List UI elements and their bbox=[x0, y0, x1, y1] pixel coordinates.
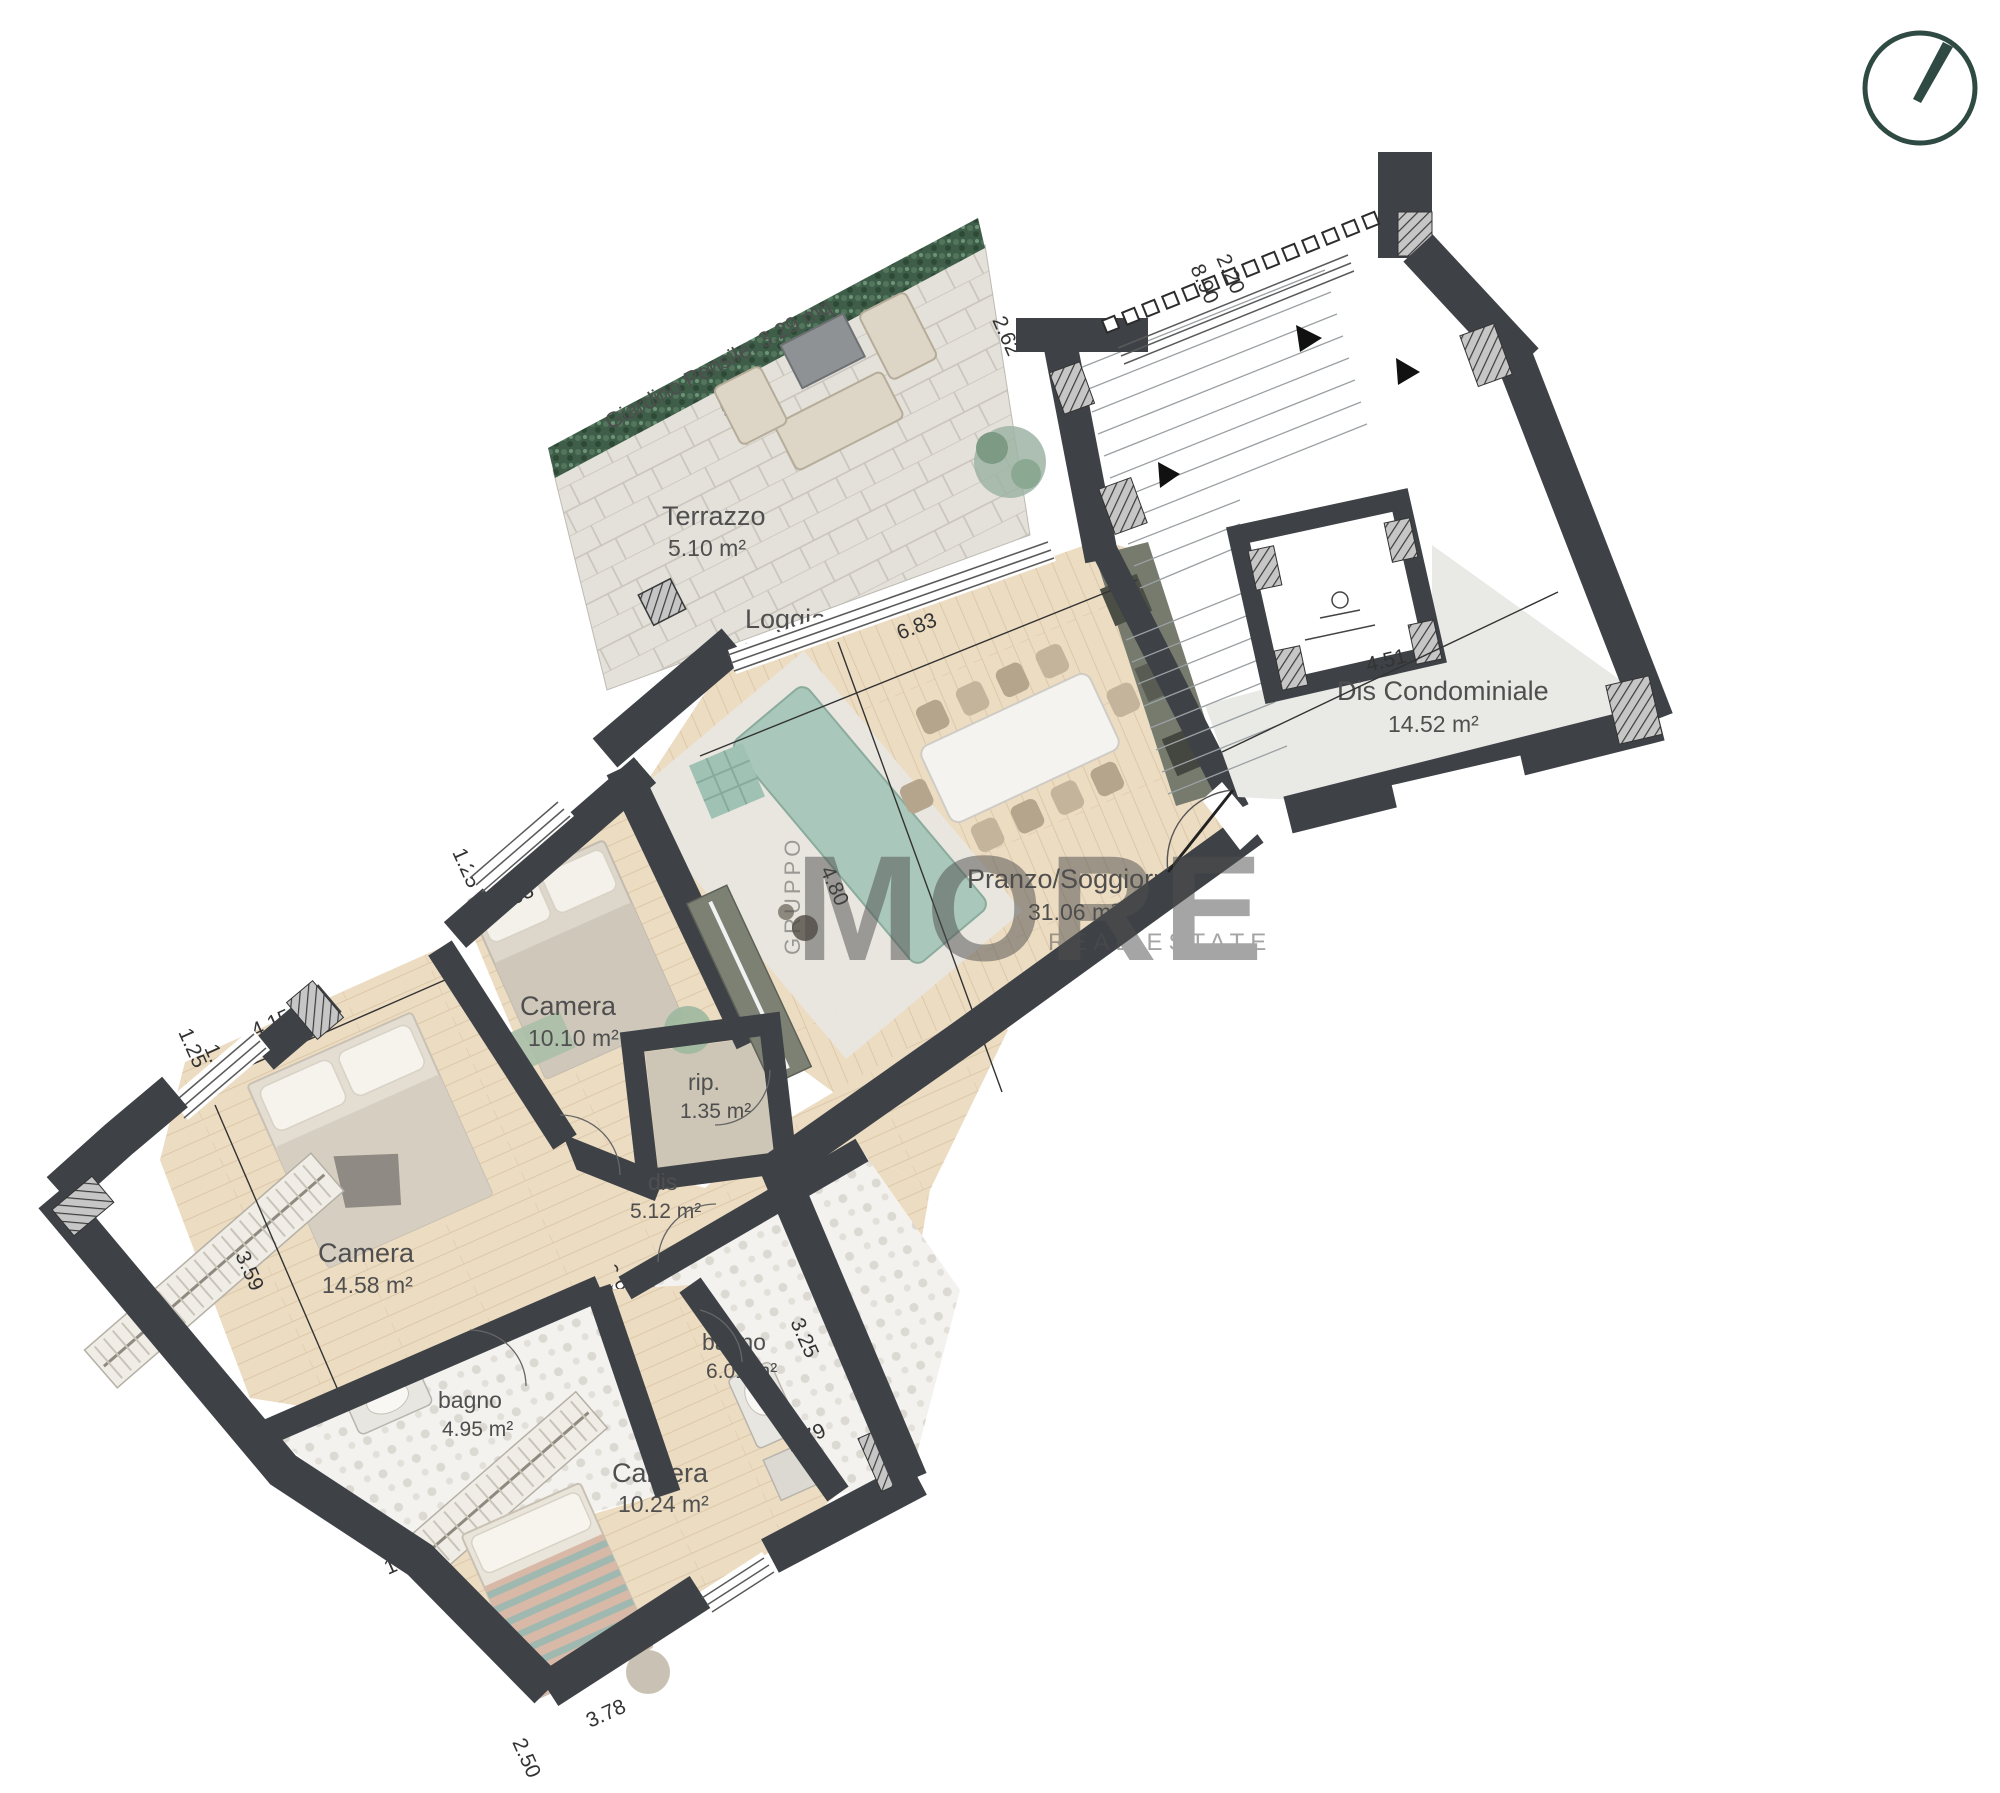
svg-text:REAL ESTATE: REAL ESTATE bbox=[1048, 929, 1272, 956]
svg-text:Dis Condominiale: Dis Condominiale bbox=[1337, 676, 1549, 706]
svg-text:rip.: rip. bbox=[688, 1069, 720, 1095]
svg-text:Terrazzo: Terrazzo bbox=[662, 501, 766, 531]
svg-text:10.10 m²: 10.10 m² bbox=[528, 1025, 619, 1051]
svg-text:5.12 m²: 5.12 m² bbox=[630, 1200, 701, 1223]
svg-text:4.95 m²: 4.95 m² bbox=[442, 1418, 513, 1441]
svg-text:bagno: bagno bbox=[438, 1387, 502, 1413]
svg-text:Camera: Camera bbox=[318, 1238, 415, 1268]
svg-text:dis: dis bbox=[648, 1169, 677, 1195]
svg-text:GRUPPO: GRUPPO bbox=[780, 836, 805, 955]
svg-text:Camera: Camera bbox=[520, 991, 617, 1021]
svg-text:5.10 m²: 5.10 m² bbox=[668, 535, 746, 561]
svg-text:14.52 m²: 14.52 m² bbox=[1388, 711, 1479, 737]
svg-text:MORE: MORE bbox=[795, 824, 1269, 992]
svg-text:14.58 m²: 14.58 m² bbox=[322, 1272, 413, 1298]
